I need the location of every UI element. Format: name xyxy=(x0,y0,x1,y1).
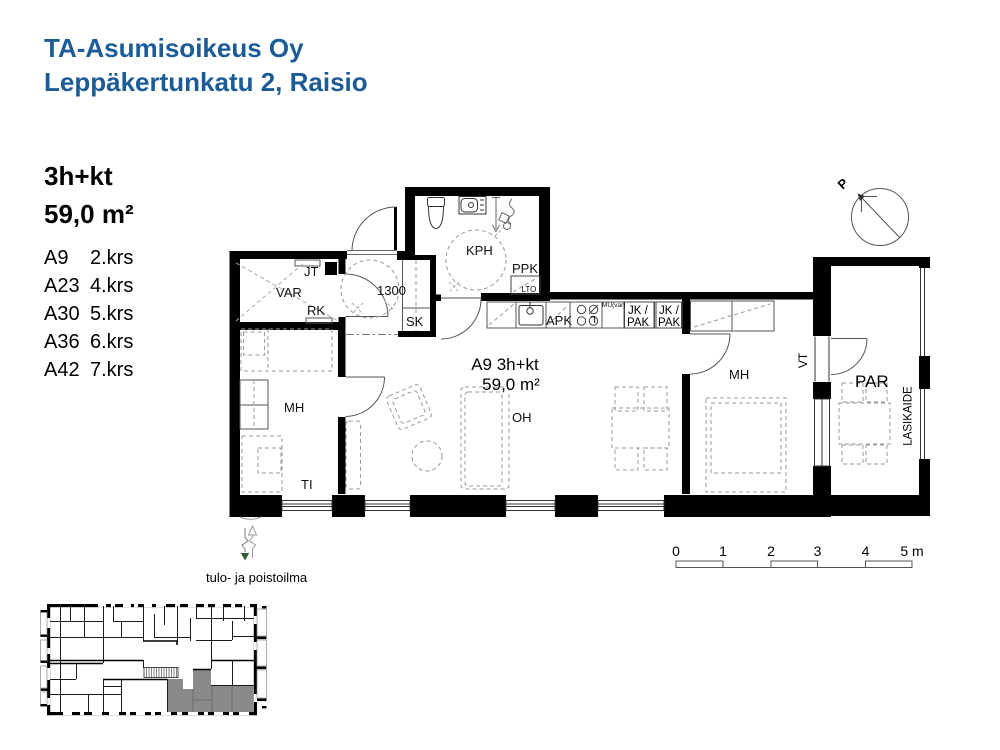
svg-text:A36: A36 xyxy=(44,331,80,353)
svg-text:PAR: PAR xyxy=(855,372,889,391)
svg-text:A23: A23 xyxy=(44,275,80,297)
svg-text:7.krs: 7.krs xyxy=(90,359,133,381)
svg-text:2.krs: 2.krs xyxy=(90,247,133,269)
svg-text:A9: A9 xyxy=(44,247,68,269)
svg-text:59,0 m²: 59,0 m² xyxy=(44,199,134,229)
svg-text:5.krs: 5.krs xyxy=(90,303,133,325)
svg-text:0: 0 xyxy=(672,543,680,559)
svg-text:MH: MH xyxy=(284,400,304,415)
svg-text:4: 4 xyxy=(862,543,870,559)
svg-text:TI: TI xyxy=(301,477,313,492)
svg-text:LASIKAIDE: LASIKAIDE xyxy=(903,386,915,446)
svg-text:3h+kt: 3h+kt xyxy=(44,161,113,191)
svg-text:6.krs: 6.krs xyxy=(90,331,133,353)
svg-text:OH: OH xyxy=(512,410,532,425)
svg-text:59,0 m²: 59,0 m² xyxy=(482,375,540,394)
svg-text:5 m: 5 m xyxy=(900,543,923,559)
svg-text:LTO: LTO xyxy=(522,285,537,294)
svg-text:3: 3 xyxy=(814,543,822,559)
svg-text:VT: VT xyxy=(796,352,810,368)
svg-text:JT: JT xyxy=(304,264,319,279)
svg-text:PPK: PPK xyxy=(512,261,538,276)
svg-text:L: L xyxy=(590,313,596,324)
svg-text:4.krs: 4.krs xyxy=(90,275,133,297)
svg-text:TA-Asumisoikeus Oy: TA-Asumisoikeus Oy xyxy=(44,33,304,63)
svg-text:tulo- ja poistoilma: tulo- ja poistoilma xyxy=(206,570,308,585)
svg-text:APK: APK xyxy=(546,313,572,328)
svg-text:VAR: VAR xyxy=(276,285,302,300)
svg-text:RK: RK xyxy=(307,303,325,318)
svg-text:JK /: JK / xyxy=(659,305,680,317)
svg-text:A30: A30 xyxy=(44,303,80,325)
svg-text:1: 1 xyxy=(719,543,727,559)
svg-text:2: 2 xyxy=(767,543,775,559)
svg-text:A9 3h+kt: A9 3h+kt xyxy=(471,355,539,374)
svg-text:MU(var): MU(var) xyxy=(602,302,625,309)
svg-text:JK /: JK / xyxy=(628,305,649,317)
svg-text:Leppäkertunkatu 2, Raisio: Leppäkertunkatu 2, Raisio xyxy=(44,67,368,97)
svg-text:A42: A42 xyxy=(44,359,80,381)
svg-text:KPH: KPH xyxy=(466,243,493,258)
svg-text:MH: MH xyxy=(729,367,749,382)
svg-text:SK: SK xyxy=(406,314,424,329)
svg-text:PAK: PAK xyxy=(658,317,680,329)
svg-text:PAK: PAK xyxy=(627,317,649,329)
svg-text:1300: 1300 xyxy=(377,283,406,298)
